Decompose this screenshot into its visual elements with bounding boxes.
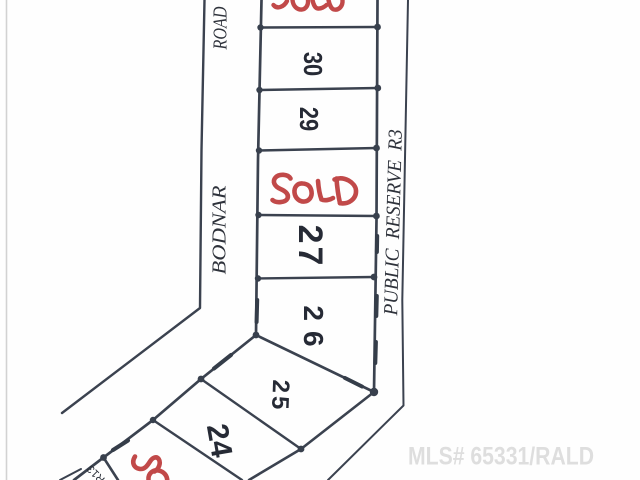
svg-text:ROAD: ROAD — [210, 6, 232, 50]
svg-text:30: 30 — [298, 52, 327, 76]
svg-text:BODNAR: BODNAR — [209, 186, 231, 275]
svg-text:26: 26 — [298, 305, 329, 356]
svg-text:29: 29 — [294, 107, 323, 131]
svg-text:24: 24 — [200, 421, 238, 460]
svg-text:MLS# 65331/RALD: MLS# 65331/RALD — [408, 443, 594, 471]
svg-text:25: 25 — [266, 379, 294, 413]
svg-text:27: 27 — [291, 225, 329, 269]
